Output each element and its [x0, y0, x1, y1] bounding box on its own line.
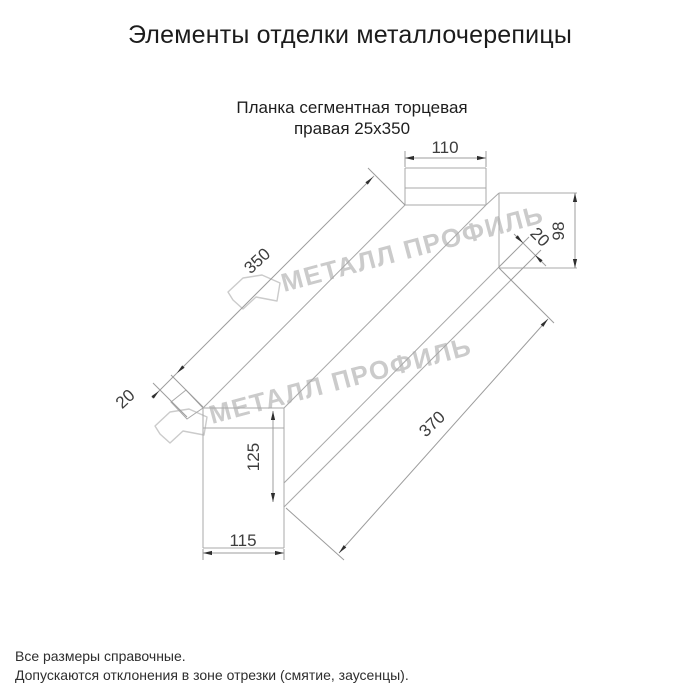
catalog-page: Элементы отделки металлочерепицы Планка …	[0, 0, 700, 700]
watermark-text-upper: МЕТАЛЛ ПРОФИЛЬ	[278, 199, 547, 298]
dim-left-end-height: 125	[244, 443, 263, 471]
metall-profil-logo-icon	[155, 409, 207, 443]
technical-drawing: МЕТАЛЛ ПРОФИЛЬ МЕТАЛЛ ПРОФИЛЬ	[0, 0, 700, 700]
left-bend-tab	[171, 390, 203, 419]
dim-flange-width: 110	[431, 138, 458, 157]
footnote-tolerances: Допускаются отклонения в зоне отрезки (с…	[15, 666, 409, 685]
footnote-dimensions: Все размеры справочные.	[15, 647, 409, 666]
dim-top-edge-length: 350	[240, 244, 274, 277]
footer-notes: Все размеры справочные. Допускаются откл…	[15, 647, 409, 684]
dimension-labels: 110 98 20 350 20 370 125 115	[112, 138, 568, 550]
dim-left-end-width: 115	[229, 531, 256, 550]
metall-profil-logo-icon	[228, 275, 280, 309]
dim-left-bend: 20	[112, 386, 139, 413]
